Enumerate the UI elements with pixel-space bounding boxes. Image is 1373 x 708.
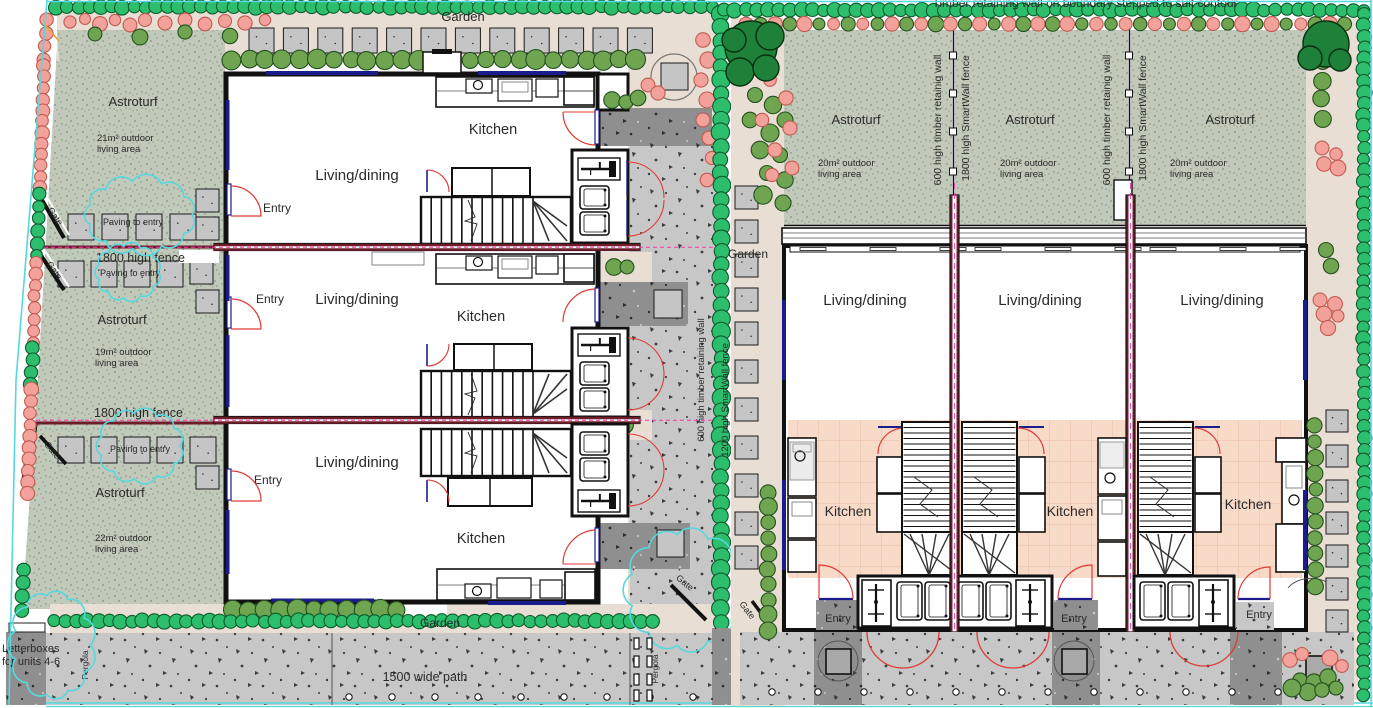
svg-text:Kitchen: Kitchen (457, 309, 505, 325)
svg-text:Living/dining: Living/dining (1180, 292, 1263, 309)
svg-text:20m² outdoor: 20m² outdoor (1170, 158, 1227, 169)
svg-text:living area: living area (1170, 169, 1214, 180)
svg-text:21m² outdoor: 21m² outdoor (97, 133, 154, 144)
svg-text:Kitchen: Kitchen (469, 122, 517, 138)
svg-text:Paving to entry: Paving to entry (100, 268, 161, 278)
svg-text:Entry: Entry (1246, 609, 1272, 621)
svg-text:20m² outdoor: 20m² outdoor (1000, 158, 1057, 169)
svg-text:Garden: Garden (420, 616, 460, 630)
svg-text:Garden: Garden (728, 247, 768, 261)
svg-text:Astroturf: Astroturf (1005, 112, 1055, 127)
svg-text:living area: living area (97, 144, 141, 155)
svg-text:Astroturf: Astroturf (108, 94, 158, 109)
svg-text:Kitchen: Kitchen (457, 531, 505, 547)
svg-text:22m² outdoor: 22m² outdoor (95, 533, 152, 544)
svg-text:Living/dining: Living/dining (315, 454, 398, 471)
svg-text:living area: living area (818, 169, 862, 180)
svg-text:Living/dining: Living/dining (315, 167, 398, 184)
svg-text:600 high timber retainig wall: 600 high timber retainig wall (932, 55, 944, 186)
svg-text:Paving to entry: Paving to entry (103, 217, 164, 227)
svg-text:Astroturf: Astroturf (1205, 112, 1255, 127)
svg-text:Entry: Entry (263, 201, 291, 215)
svg-text:Astroturf: Astroturf (95, 485, 145, 500)
svg-text:1800 high SmartWall fence: 1800 high SmartWall fence (960, 55, 972, 181)
svg-text:20m² outdoor: 20m² outdoor (818, 158, 875, 169)
svg-text:Living/dining: Living/dining (315, 291, 398, 308)
svg-text:Astroturf: Astroturf (831, 112, 881, 127)
svg-text:1800 high fence: 1800 high fence (96, 251, 185, 265)
svg-text:1200 high SmartWall fence: 1200 high SmartWall fence (720, 343, 731, 457)
svg-text:Entry: Entry (1061, 613, 1087, 625)
svg-text:Entry: Entry (825, 613, 851, 625)
svg-text:Living/dining: Living/dining (823, 292, 906, 309)
svg-text:Paving to entry: Paving to entry (110, 444, 171, 454)
svg-text:1500 wide path: 1500 wide path (383, 670, 468, 684)
svg-text:Garden: Garden (441, 9, 484, 24)
svg-text:19m² outdoor: 19m² outdoor (95, 347, 152, 358)
svg-text:living area: living area (1000, 169, 1044, 180)
svg-text:Kitchen: Kitchen (1047, 503, 1094, 519)
svg-text:Living/dining: Living/dining (998, 292, 1081, 309)
svg-text:living area: living area (95, 358, 139, 369)
svg-text:Kitchen: Kitchen (1225, 496, 1272, 512)
svg-text:600 high timber retaining wall: 600 high timber retaining wall (696, 318, 707, 442)
svg-text:Astroturf: Astroturf (97, 312, 147, 327)
svg-text:Entry: Entry (256, 292, 284, 306)
svg-text:living area: living area (95, 544, 139, 555)
svg-text:600 high timber retainig wall: 600 high timber retainig wall (1101, 55, 1113, 186)
svg-text:1800 high SmartWall fence: 1800 high SmartWall fence (1137, 55, 1149, 181)
svg-text:Entry: Entry (254, 473, 282, 487)
svg-text:Kitchen: Kitchen (825, 503, 872, 519)
